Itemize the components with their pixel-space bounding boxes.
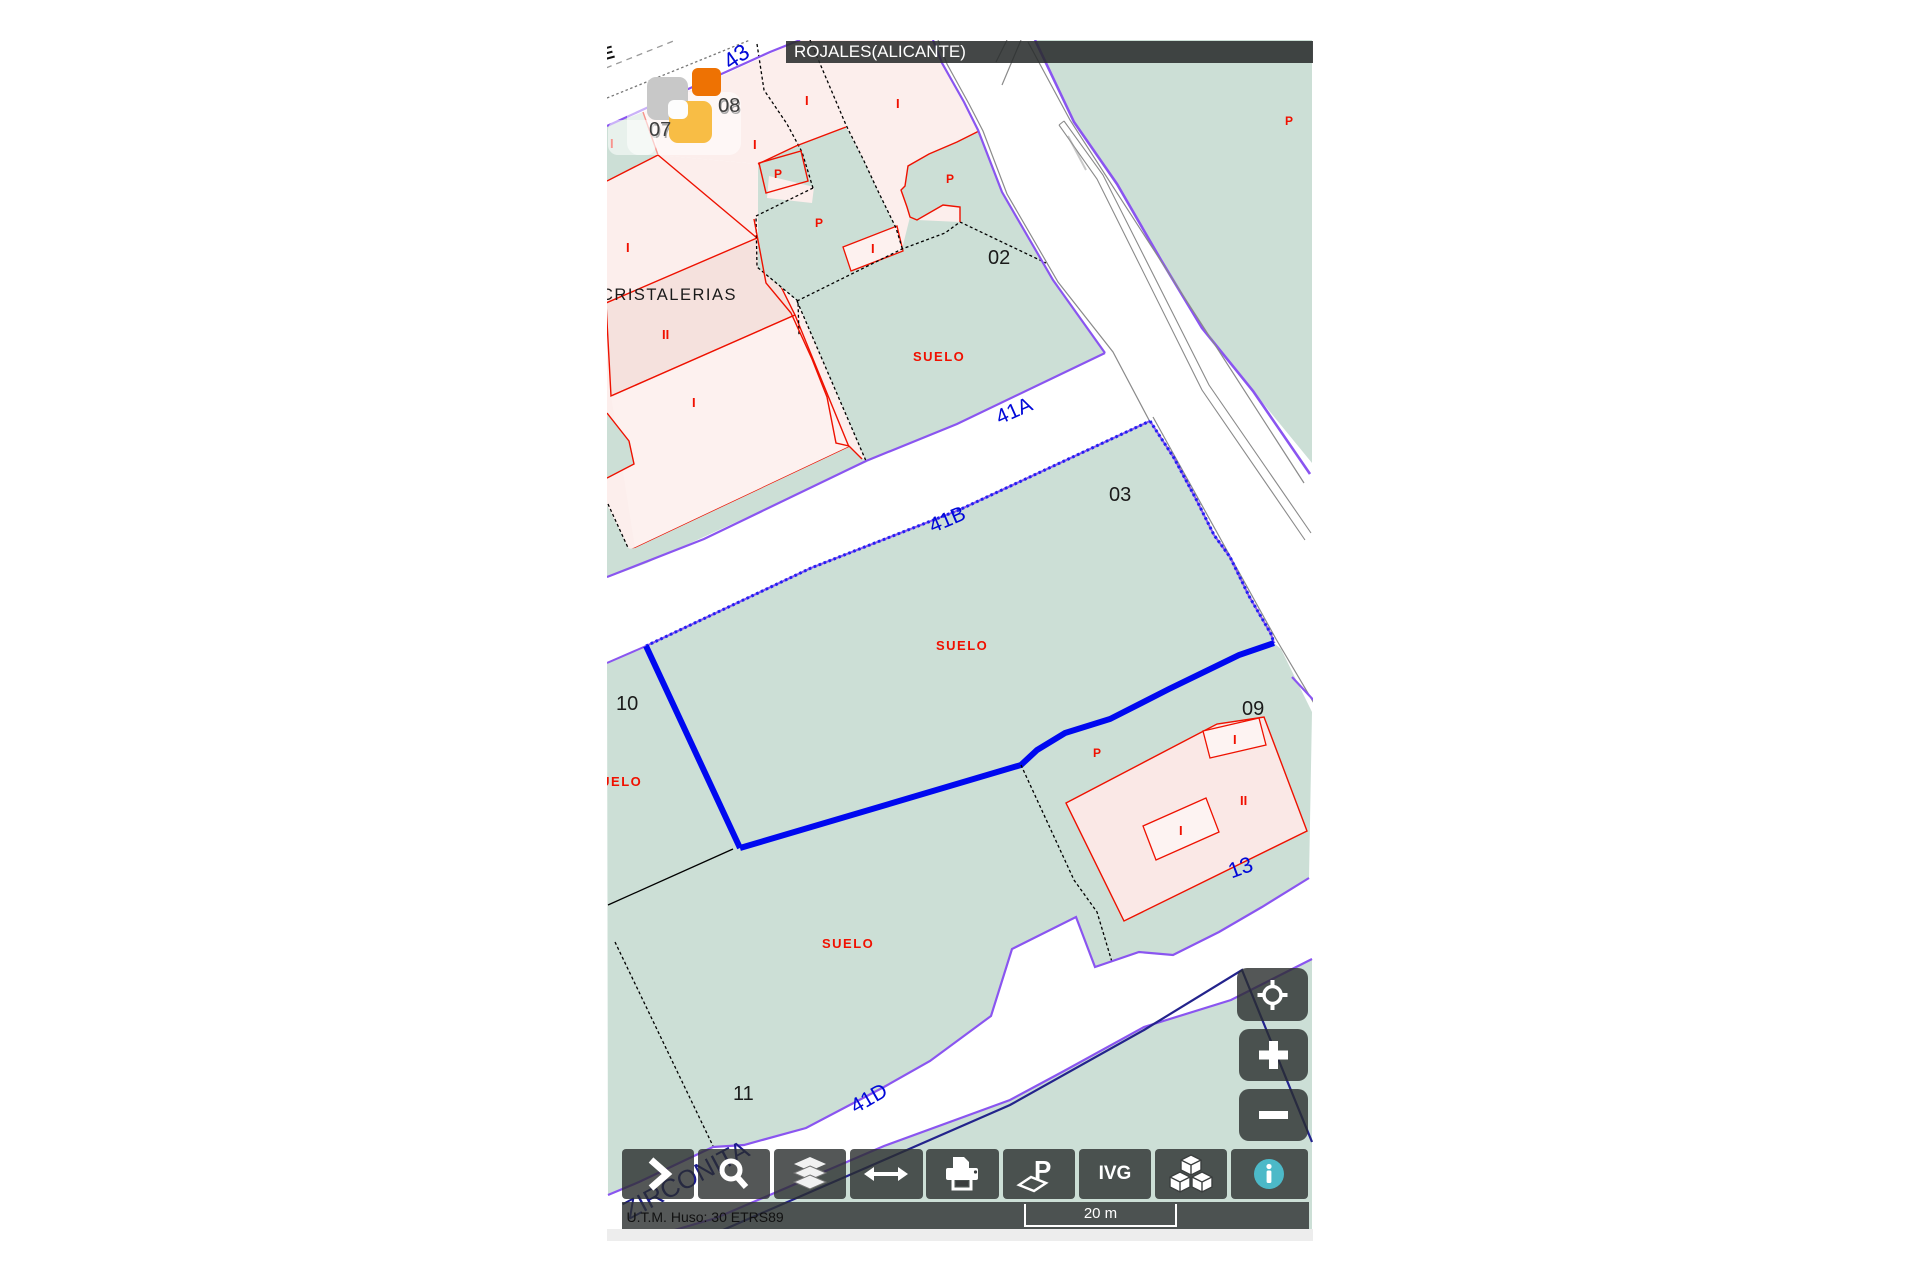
svg-text:SUELO: SUELO bbox=[936, 638, 988, 653]
svg-text:I: I bbox=[1233, 732, 1237, 747]
svg-text:P: P bbox=[815, 216, 823, 230]
svg-text:11: 11 bbox=[733, 1083, 754, 1105]
svg-text:I: I bbox=[626, 240, 630, 255]
svg-text:II: II bbox=[662, 327, 669, 342]
svg-text:SUELO: SUELO bbox=[822, 936, 874, 951]
svg-text:I: I bbox=[753, 137, 757, 152]
svg-text:P: P bbox=[1093, 746, 1101, 760]
svg-text:I: I bbox=[692, 395, 696, 410]
svg-text:03: 03 bbox=[1109, 484, 1131, 506]
svg-text:02: 02 bbox=[988, 247, 1010, 269]
svg-text:E: E bbox=[607, 42, 617, 64]
svg-text:II: II bbox=[1240, 793, 1247, 808]
svg-text:I: I bbox=[896, 96, 900, 111]
svg-text:SUELO: SUELO bbox=[607, 774, 642, 789]
svg-text:P: P bbox=[1285, 114, 1293, 128]
svg-text:I: I bbox=[1179, 823, 1183, 838]
svg-text:CRISTALERIAS: CRISTALERIAS bbox=[607, 286, 737, 304]
svg-text:I: I bbox=[805, 93, 809, 108]
svg-text:I: I bbox=[871, 241, 875, 256]
svg-text:10: 10 bbox=[616, 693, 638, 715]
svg-text:09: 09 bbox=[1242, 698, 1264, 720]
svg-text:SUELO: SUELO bbox=[913, 349, 965, 364]
svg-text:P: P bbox=[946, 172, 954, 186]
svg-text:P: P bbox=[774, 167, 782, 181]
